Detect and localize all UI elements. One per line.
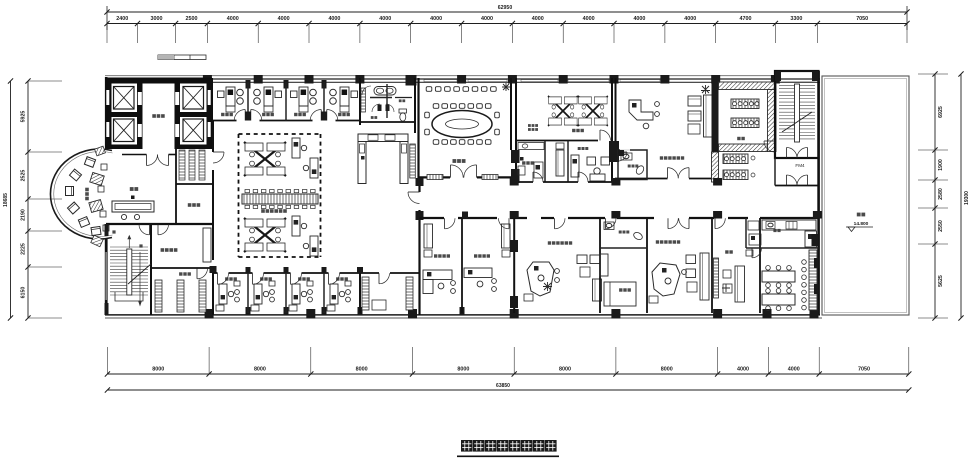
svg-text:8000: 8000 — [661, 366, 673, 372]
svg-text:4700: 4700 — [740, 16, 752, 22]
svg-text:6925: 6925 — [938, 106, 944, 118]
svg-text:2500: 2500 — [186, 16, 198, 22]
svg-text:4000: 4000 — [278, 16, 290, 22]
svg-text:4000: 4000 — [633, 16, 645, 22]
svg-text:4000: 4000 — [583, 16, 595, 22]
svg-text:19300: 19300 — [964, 191, 970, 205]
svg-text:3300: 3300 — [790, 16, 802, 22]
svg-text:2550: 2550 — [938, 220, 944, 232]
svg-text:2580: 2580 — [938, 188, 944, 200]
svg-text:4000: 4000 — [684, 16, 696, 22]
svg-text:14.800: 14.800 — [854, 221, 869, 227]
svg-text:8000: 8000 — [559, 366, 571, 372]
svg-text:4000: 4000 — [788, 366, 800, 372]
svg-text:FM4: FM4 — [795, 163, 805, 168]
svg-text:8000: 8000 — [356, 366, 368, 372]
svg-text:18685: 18685 — [3, 193, 9, 207]
svg-text:2225: 2225 — [21, 243, 27, 255]
svg-text:5625: 5625 — [938, 275, 944, 287]
svg-text:7050: 7050 — [856, 16, 868, 22]
svg-text:3000: 3000 — [151, 16, 163, 22]
svg-text:62950: 62950 — [498, 5, 513, 11]
svg-text:4000: 4000 — [328, 16, 340, 22]
svg-text:8000: 8000 — [152, 366, 164, 372]
svg-text:4000: 4000 — [430, 16, 442, 22]
svg-text:4000: 4000 — [227, 16, 239, 22]
svg-text:4000: 4000 — [379, 16, 391, 22]
svg-text:1900: 1900 — [938, 159, 944, 171]
svg-text:2190: 2190 — [21, 209, 27, 221]
svg-text:4000: 4000 — [481, 16, 493, 22]
svg-text:8000: 8000 — [254, 366, 266, 372]
svg-text:4000: 4000 — [737, 366, 749, 372]
svg-text:2525: 2525 — [21, 170, 27, 182]
svg-text:7050: 7050 — [858, 366, 870, 372]
svg-text:63850: 63850 — [496, 383, 510, 389]
svg-text:4000: 4000 — [532, 16, 544, 22]
svg-text:8000: 8000 — [457, 366, 469, 372]
svg-text:2400: 2400 — [116, 16, 128, 22]
svg-text:5925: 5925 — [21, 111, 27, 123]
svg-text:6150: 6150 — [21, 287, 27, 299]
